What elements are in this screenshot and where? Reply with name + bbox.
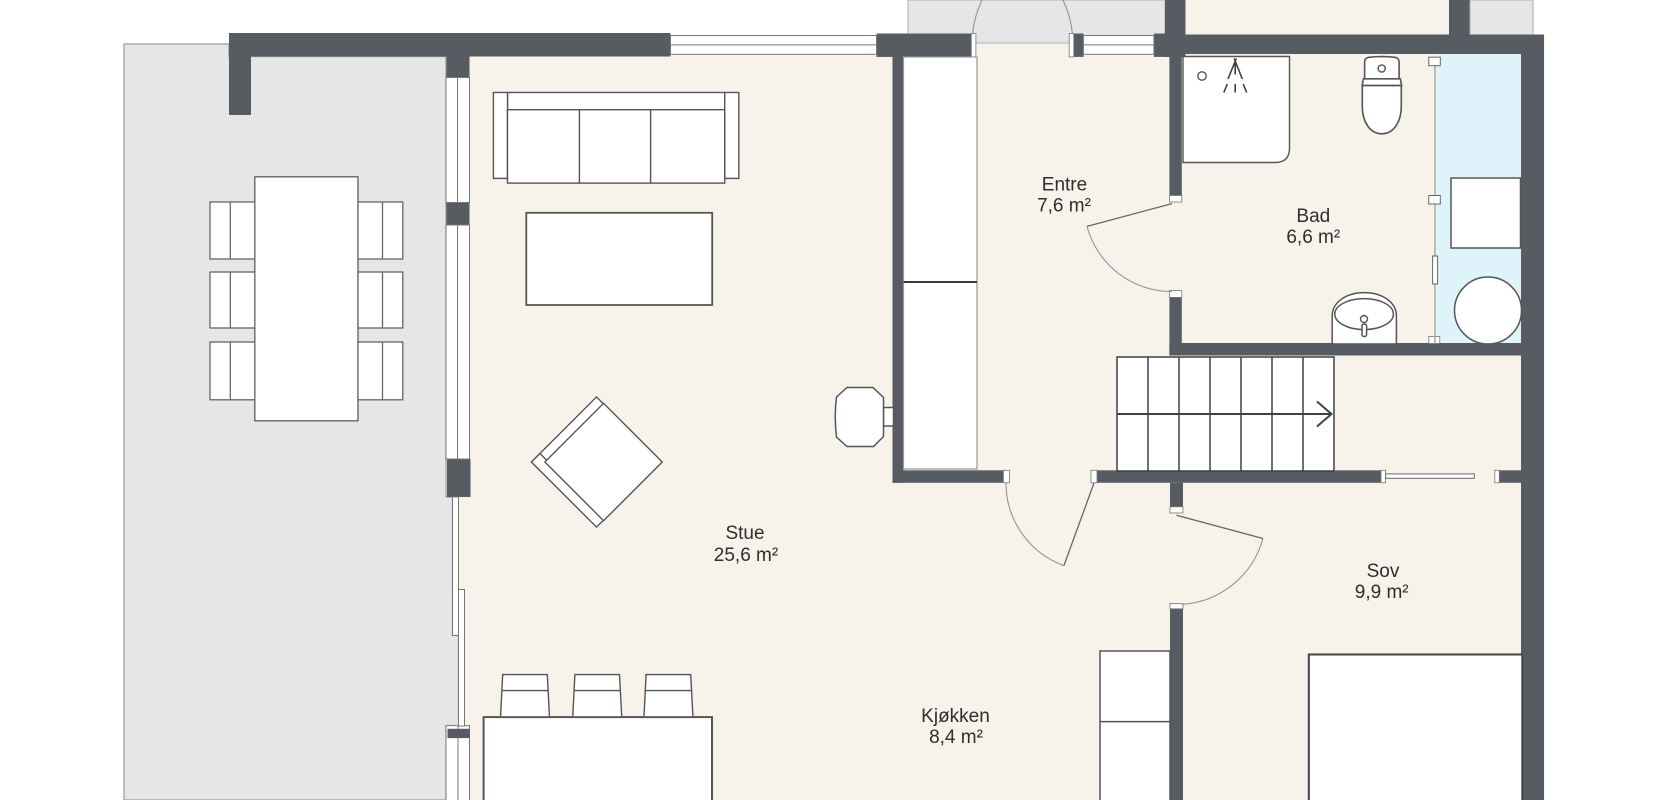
- svg-text:25,6 m²: 25,6 m²: [714, 545, 778, 566]
- svg-text:Kjøkken: Kjøkken: [921, 706, 990, 727]
- svg-text:Sov: Sov: [1367, 561, 1400, 582]
- svg-text:Bad: Bad: [1296, 206, 1330, 227]
- svg-text:8,4 m²: 8,4 m²: [929, 727, 983, 748]
- svg-text:9,9 m²: 9,9 m²: [1355, 582, 1409, 603]
- svg-text:7,6 m²: 7,6 m²: [1037, 196, 1091, 217]
- svg-text:Entre: Entre: [1042, 175, 1087, 196]
- svg-text:6,6 m²: 6,6 m²: [1286, 227, 1340, 248]
- svg-text:Stue: Stue: [725, 523, 764, 544]
